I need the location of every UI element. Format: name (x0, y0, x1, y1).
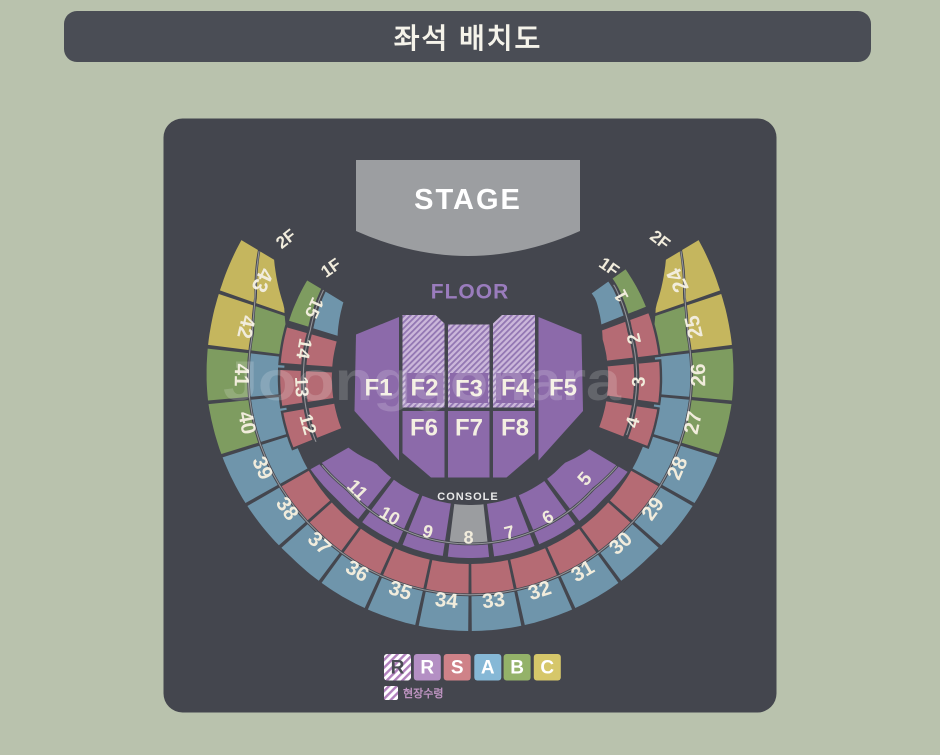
svg-text:34: 34 (434, 588, 460, 613)
svg-text:S: S (451, 658, 464, 679)
svg-text:B: B (510, 658, 524, 679)
svg-text:C: C (540, 658, 554, 679)
svg-text:F8: F8 (501, 415, 529, 442)
svg-text:Joonggonara: Joonggonara (223, 349, 622, 412)
svg-text:R: R (391, 658, 405, 679)
svg-text:26: 26 (687, 363, 710, 386)
svg-text:FLOOR: FLOOR (431, 281, 510, 304)
svg-text:좌석 배치도: 좌석 배치도 (394, 23, 543, 54)
svg-text:CONSOLE: CONSOLE (437, 491, 498, 503)
svg-text:F7: F7 (455, 415, 483, 442)
svg-text:3: 3 (628, 376, 649, 387)
svg-text:A: A (481, 658, 495, 679)
svg-text:R: R (420, 658, 434, 679)
svg-text:F6: F6 (410, 415, 438, 442)
svg-text:현장수령: 현장수령 (403, 686, 443, 700)
svg-text:STAGE: STAGE (414, 184, 522, 216)
svg-text:33: 33 (481, 588, 506, 613)
